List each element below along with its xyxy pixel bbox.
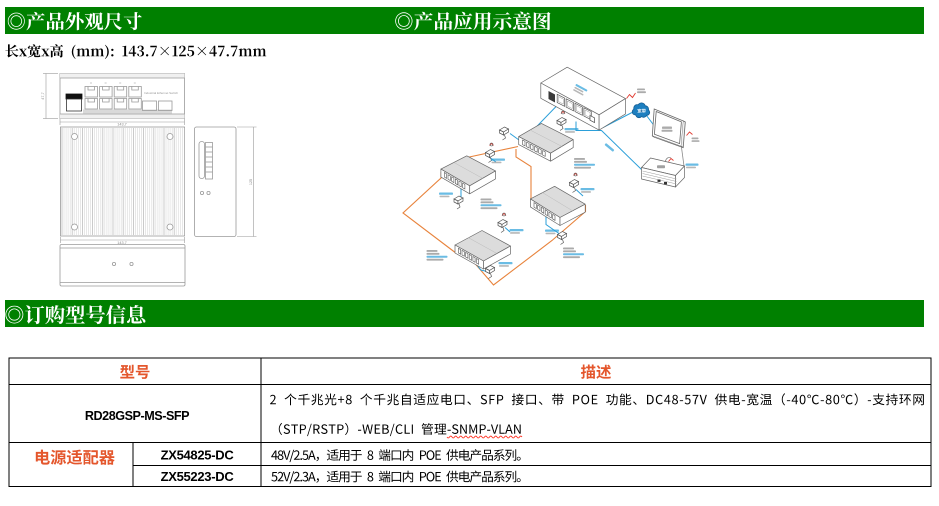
svg-text:125: 125 (249, 179, 253, 185)
svg-text:Industrial Ethernet Switch: Industrial Ethernet Switch (144, 91, 178, 95)
svg-text:47,7: 47,7 (41, 92, 45, 99)
svg-text:RD28GSP-MS-SFP: RD28GSP-MS-SFP (85, 409, 189, 423)
svg-text:ZX54825-DC: ZX54825-DC (161, 447, 235, 462)
svg-text:ZX55223-DC: ZX55223-DC (161, 469, 235, 484)
svg-text:143,7: 143,7 (117, 123, 127, 127)
